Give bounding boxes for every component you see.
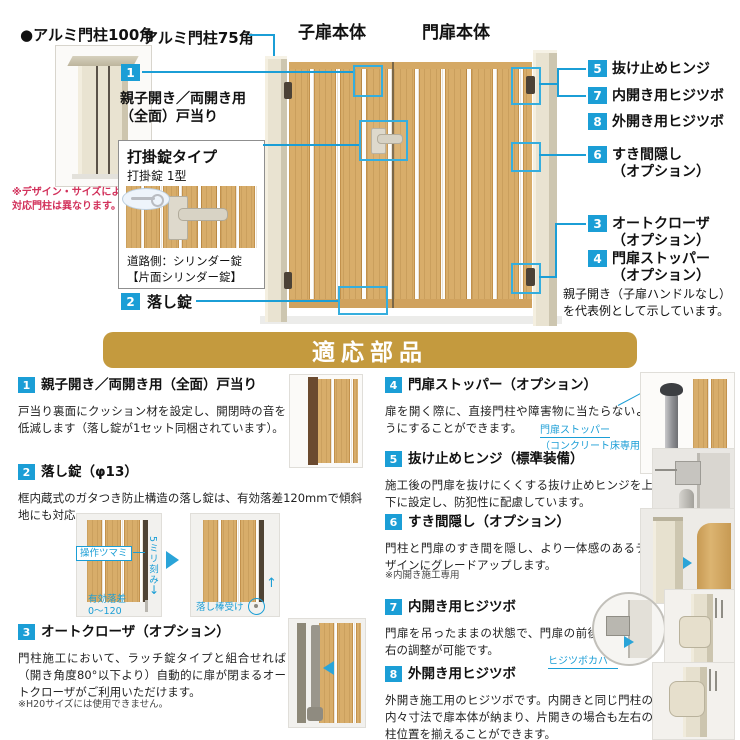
item5-hinge-plate-top: [675, 461, 701, 485]
section-banner: 適応部品: [103, 332, 637, 368]
item2-receiver-circle: [248, 598, 265, 615]
item8-title: 外開き用ヒジツボ: [408, 666, 516, 683]
item3-post-strip: [297, 623, 306, 723]
item7-pin-2: [721, 600, 723, 618]
post100-label: ●アルミ門柱100角: [20, 24, 154, 45]
diagram-label-6: すき間隠し: [612, 146, 682, 164]
item8-pin-1: [709, 669, 711, 691]
item2-pitch-label: 5ミリ刻み: [146, 536, 158, 585]
item4-caption-1: 門扉ストッパー: [540, 421, 610, 438]
item7-header: 7 内開き用ヒジツボ: [385, 599, 516, 616]
child-door-label: 子扉本体: [298, 18, 366, 43]
item8-cover: [669, 681, 705, 717]
item5-header: 5 抜け止めヒンジ（標準装備）: [385, 451, 584, 468]
item1-photo-doorstop: [289, 374, 363, 468]
item7-inset-post: [628, 600, 652, 658]
item8-header: 8 外開き用ヒジツボ: [385, 666, 516, 683]
item2-right-wood: [203, 520, 261, 602]
lock-type-box: 打掛錠タイプ 打掛錠 1型 道路側：シリンダー錠 【片面シリンダー錠】: [118, 140, 265, 289]
item2-drop-label-2: 0〜120: [88, 606, 122, 618]
lock-type-subtitle: 打掛錠 1型: [127, 167, 186, 184]
post100-note-2: 対応門柱は異なります。: [12, 200, 121, 214]
diagram-label-3: オートクローザ: [612, 215, 710, 233]
callout1-label-1: 親子開き／両開き用: [120, 90, 246, 108]
stub-5: [559, 68, 586, 70]
item5-badge: 5: [385, 451, 402, 467]
item2-drop-label-1: 有効落差: [88, 594, 126, 606]
post75-callout-line-v: [273, 34, 275, 58]
item4-badge: 4: [385, 377, 402, 393]
stub-3: [557, 223, 586, 225]
item3-header: 3 オートクローザ（オプション）: [18, 624, 230, 641]
hinge-child-bottom: [284, 272, 292, 289]
callout-box-handle: [359, 120, 408, 161]
item2-header: 2 落し錠（φ13）: [18, 464, 138, 481]
item2-receiver-dot: [254, 604, 258, 608]
item1-title: 親子開き／両開き用（全面）戸当り: [41, 377, 257, 394]
arrow-left-icon: [323, 661, 334, 675]
stub-7: [559, 95, 586, 97]
handle-callout-line: [263, 144, 359, 146]
arrow-right-icon: [166, 551, 179, 569]
diagram-badge-2: 2: [121, 293, 140, 310]
diagram-label-4-sub: （オプション）: [612, 267, 710, 285]
representative-note-2: を代表例として示しています。: [563, 303, 729, 320]
callout-box-droplock: [338, 286, 388, 315]
callout-box-hinge-top: [511, 67, 541, 105]
item1-header: 1 親子開き／両開き用（全面）戸当り: [18, 377, 257, 394]
post100-groove-1: [96, 66, 98, 174]
diagram-label-7: 内開き用ヒジツボ: [612, 87, 724, 105]
line-boxD: [539, 83, 559, 85]
item3-photo-closer: [288, 618, 366, 728]
callout2-line: [196, 300, 338, 302]
callout-box-hinge-bottom: [511, 263, 541, 294]
child-door-panel: [289, 62, 392, 308]
diagram-badge-3: 3: [588, 215, 607, 232]
item8-pin-2: [715, 671, 717, 691]
lock-type-title: 打掛錠タイプ: [127, 146, 217, 167]
diagram-badge-8: 8: [588, 113, 607, 130]
item2-title: 落し錠（φ13）: [41, 464, 138, 481]
handle-lever: [377, 134, 403, 144]
item5-body: 施工後の門扉を抜けにくくする抜け止めヒンジを上下に設定し、防犯性に配慮しています…: [385, 477, 653, 511]
item1-wood: [316, 379, 358, 463]
item2-badge: 2: [18, 464, 35, 480]
item4-header: 4 門扉ストッパー（オプション）: [385, 377, 597, 394]
callout-box-doastop: [353, 65, 383, 97]
diagram-label-5: 抜け止めヒンジ: [612, 60, 710, 78]
lock-photo: [126, 186, 257, 248]
item6-header: 6 すき間隠し（オプション）: [385, 514, 570, 531]
item3-closer-bar: [311, 625, 320, 711]
item4-stopper-cap: [660, 383, 683, 396]
item2-drop-rod: [145, 600, 148, 612]
key-ring-icon: [151, 194, 164, 207]
item2-knob-line: [133, 552, 145, 553]
item6-note: ※内開き施工専用: [385, 567, 459, 581]
item6-arrow-icon: [683, 557, 692, 569]
post100-groove-2: [108, 66, 110, 174]
item6-title: すき間隠し（オプション）: [408, 514, 570, 531]
lock-photo-cylinder-bubble: [122, 188, 170, 210]
item3-note: ※H20サイズには使用できません。: [18, 696, 168, 710]
lock-type-note-1: 道路側：シリンダー錠: [127, 253, 242, 269]
diagram-badge-5: 5: [588, 60, 607, 77]
item7-pin-1: [715, 598, 717, 618]
diagram-label-4: 門扉ストッパー: [612, 250, 710, 268]
item6-badge: 6: [385, 514, 402, 530]
item1-badge: 1: [18, 377, 35, 393]
item3-body: 門柱施工において、ラッチ錠タイプと組合せれば（開き角度80°以下より）自動的に扉…: [18, 650, 286, 701]
item2-receiver-label: 落し棒受け: [196, 602, 244, 614]
item1-body: 戸当り裏面にクッション材を設定し、開閉時の音を低減します（落し錠が1セット同梱さ…: [18, 403, 286, 437]
callout1-label-2: （全面）戸当り: [120, 108, 218, 126]
ground-shadow: [260, 316, 562, 324]
item2-left-wood: [87, 520, 145, 602]
hinge-child-top: [284, 82, 292, 99]
item5-title: 抜け止めヒンジ（標準装備）: [408, 451, 584, 468]
item8-badge: 8: [385, 666, 402, 682]
item1-doorstop-strip: [308, 377, 318, 465]
item4-wood: [693, 379, 727, 459]
section-banner-title: 適応部品: [312, 333, 428, 367]
diagram-label-6-sub: （オプション）: [612, 163, 710, 181]
item8-body: 外開き施工用のヒジツボです。内開きと同じ門柱の内々寸法で扉本体が納まり、片開きの…: [385, 692, 653, 740]
callout1-line: [142, 71, 353, 73]
item3-closer-body: [307, 707, 323, 721]
item7-inset-hinge: [606, 616, 630, 636]
item4-title: 門扉ストッパー（オプション）: [408, 377, 597, 394]
lock-type-note-2: 【片面シリンダー錠】: [127, 269, 242, 285]
post75-label: アルミ門柱75角: [143, 27, 254, 48]
diagram-badge-7: 7: [588, 87, 607, 104]
diagram-badge-6: 6: [588, 146, 607, 163]
item8-photo-hinge: [652, 662, 735, 740]
item7-arrow-icon: [624, 636, 634, 648]
line-6: [539, 154, 586, 156]
item7-photo-inset: [592, 592, 666, 666]
callout-box-gapcover: [511, 142, 541, 172]
bracket-34: [555, 223, 557, 278]
diagram-label-8: 外開き用ヒジツボ: [612, 113, 724, 131]
diagram-label-3-sub: （オプション）: [612, 232, 710, 250]
item2-up-arrow: ↑: [266, 578, 277, 590]
item7-title: 内開き用ヒジツボ: [408, 599, 516, 616]
item5-hinge-pin: [655, 469, 677, 471]
item3-badge: 3: [18, 624, 35, 640]
diagram-badge-1: 1: [121, 64, 140, 81]
item2-right-edge: [259, 520, 264, 602]
item2-knob-label: 操作ツマミ: [76, 546, 132, 561]
representative-note-1: 親子開き（子扉ハンドルなし）: [563, 286, 731, 303]
item4-caption-2: （コンクリート床専用）: [540, 437, 650, 452]
catalog-page: ●アルミ門柱100角 ※デザイン・サイズによって 対応門柱は異なります。 アルミ…: [0, 0, 740, 740]
item7-badge: 7: [385, 599, 402, 615]
main-door-label: 門扉本体: [422, 18, 490, 43]
callout2-label: 落し錠: [147, 293, 192, 311]
item7-cover: [679, 616, 711, 648]
diagram-badge-4: 4: [588, 250, 607, 267]
item3-title: オートクローザ（オプション）: [41, 624, 230, 641]
bracket-57: [557, 68, 559, 97]
item2-pitch-arrow: ↓: [149, 584, 159, 596]
lock-photo-lever: [178, 208, 228, 221]
post75-callout-line-h: [249, 34, 275, 36]
